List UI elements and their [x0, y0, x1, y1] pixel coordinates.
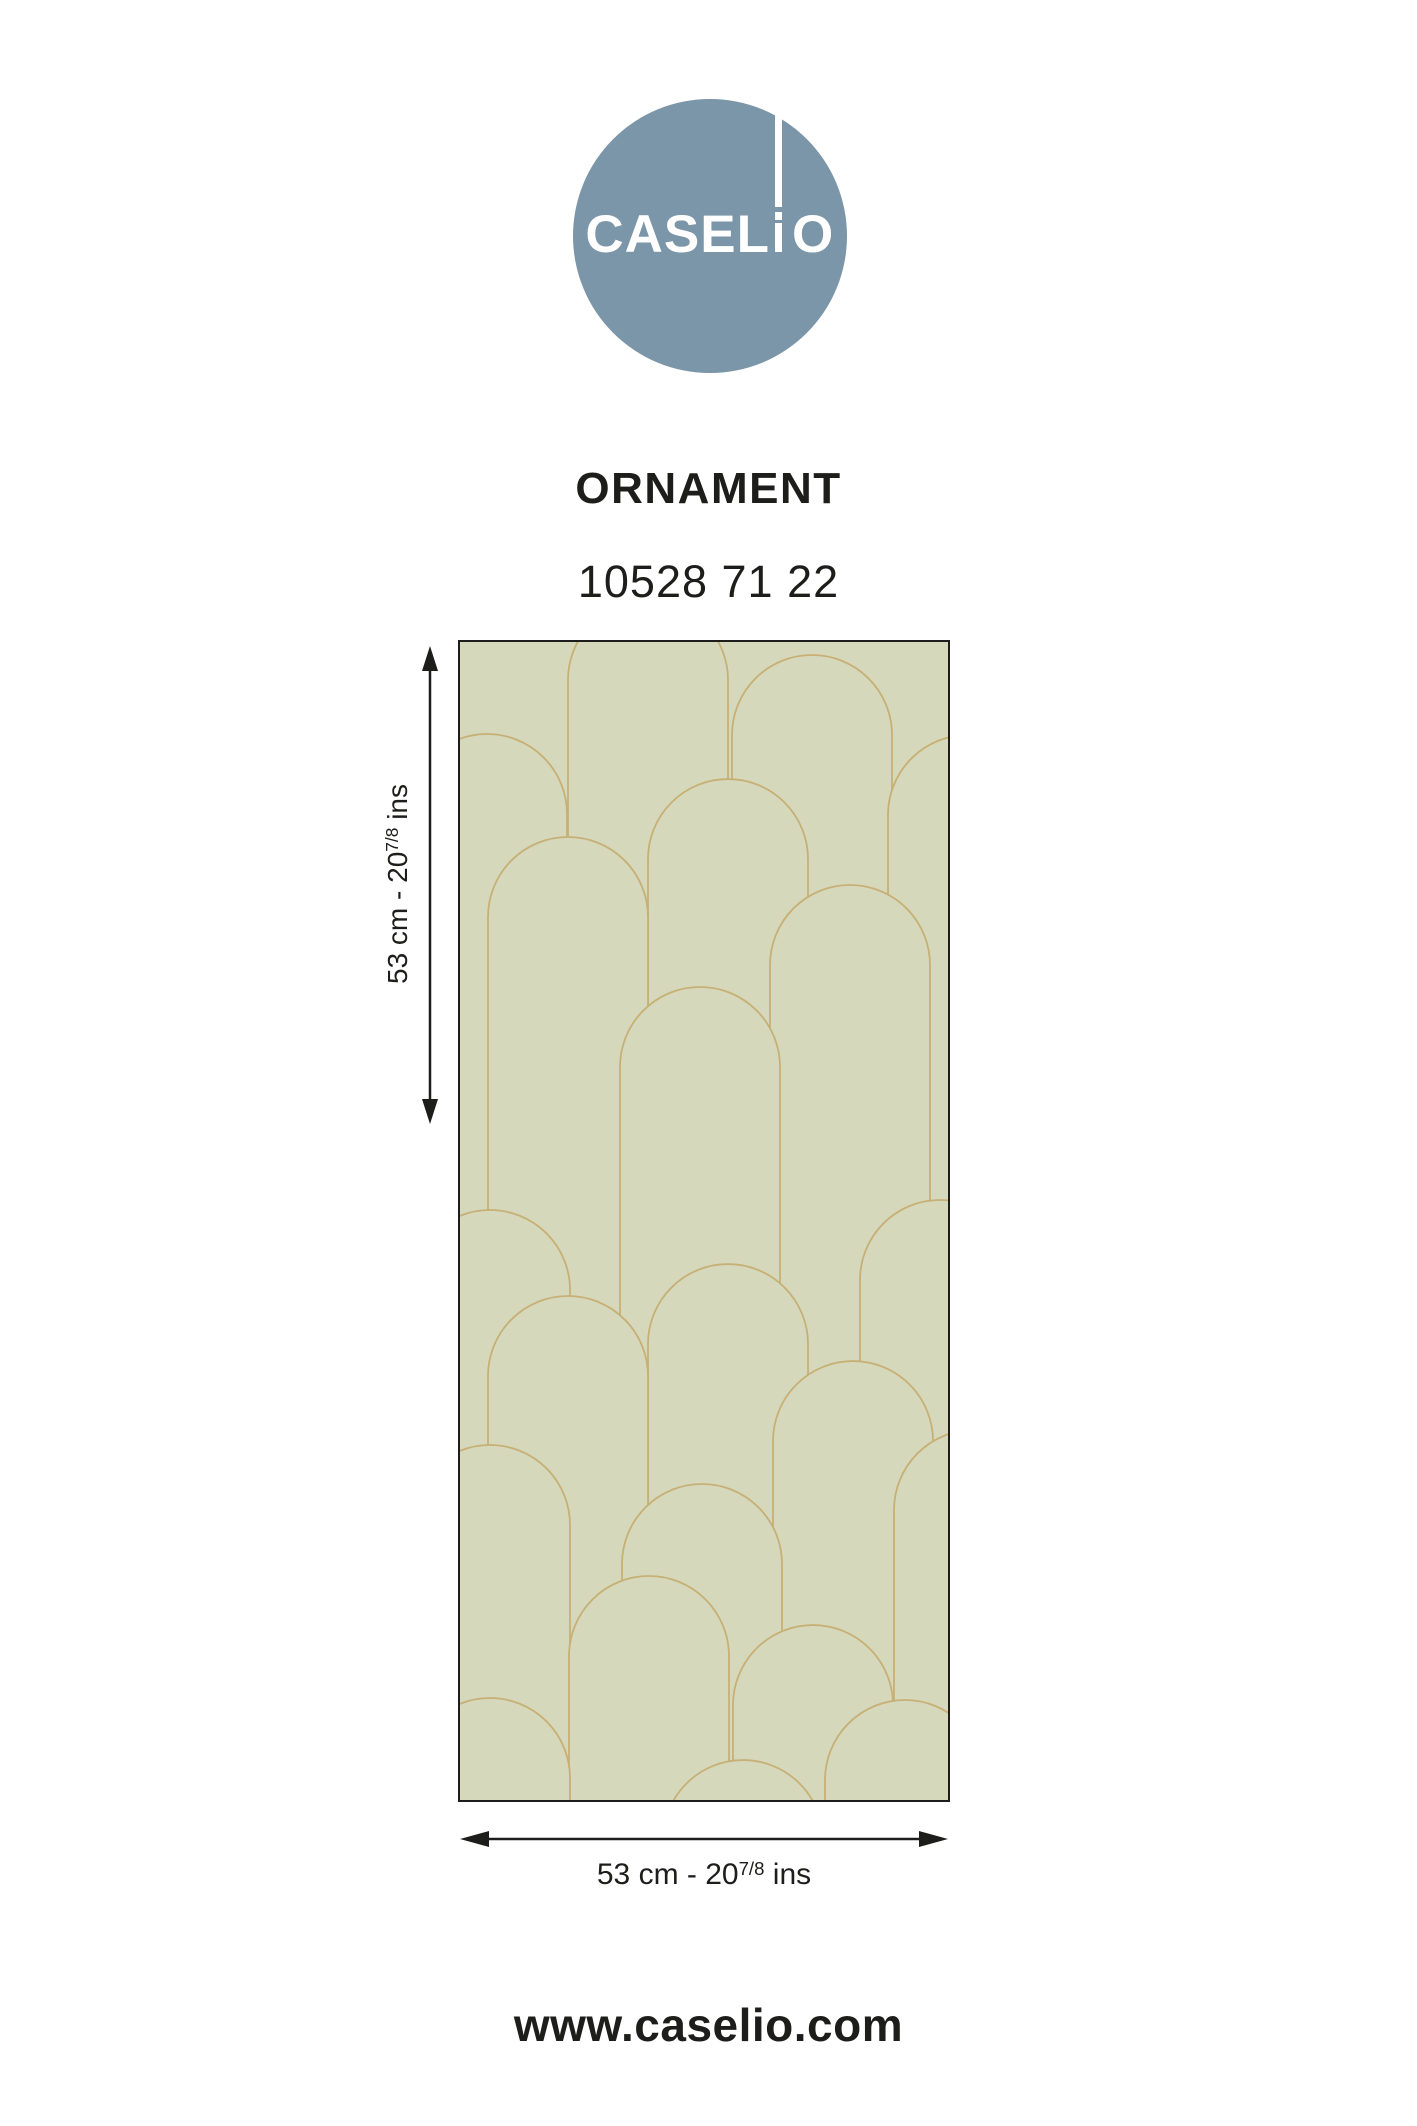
logo-wordmark-left: CASEL — [585, 205, 770, 264]
arrow-down-head — [422, 1099, 438, 1124]
arrow-right-head — [919, 1831, 948, 1847]
arrow-up-head — [422, 646, 438, 671]
height-label-prefix: 53 cm - 20 — [382, 852, 413, 984]
arrow-left-head — [460, 1831, 489, 1847]
height-dimension-arrow — [416, 646, 444, 1124]
website-url: www.caselio.com — [0, 1998, 1417, 2052]
height-dimension-label: 53 cm - 207/8 ins — [382, 724, 416, 1044]
width-dimension-arrow — [458, 1824, 950, 1854]
width-label-suffix: ins — [764, 1858, 811, 1891]
collection-title: ORNAMENT — [0, 464, 1417, 514]
width-label-prefix: 53 cm - 20 — [597, 1858, 739, 1891]
logo-i-stem — [775, 223, 782, 252]
height-label-suffix: ins — [382, 784, 413, 828]
wallpaper-swatch-pattern — [460, 642, 948, 1800]
reference-number: 10528 71 22 — [0, 556, 1417, 608]
product-sheet: CASEL O ORNAMENT 10528 71 22 53 cm - 207… — [0, 0, 1417, 2126]
caselio-logo: CASEL O — [570, 96, 850, 376]
height-label-fraction: 7/8 — [382, 828, 402, 852]
wallpaper-swatch — [458, 640, 950, 1802]
arch-motif — [569, 1576, 729, 1800]
width-dimension-label: 53 cm - 207/8 ins — [458, 1858, 950, 1892]
logo-wordmark-right: O — [792, 205, 834, 264]
width-label-fraction: 7/8 — [739, 1858, 765, 1879]
logo-i-dot — [775, 212, 782, 220]
logo-i-bar — [775, 115, 782, 207]
